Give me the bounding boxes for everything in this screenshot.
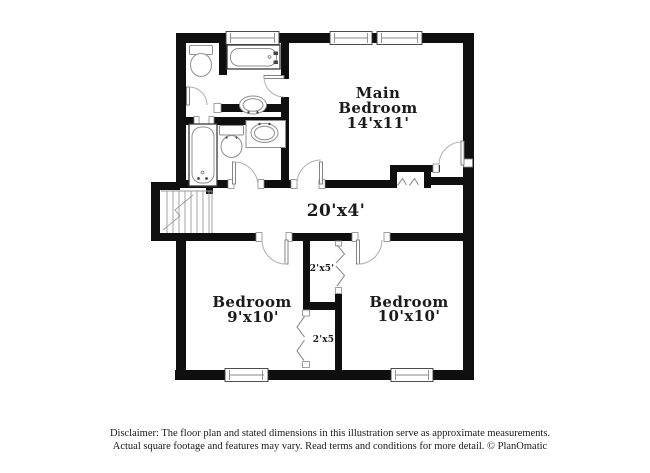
- floor-plan-page: Main Bedroom 14'x11' 20'x4' Bedroom 9'x1…: [0, 0, 650, 473]
- door: [187, 87, 208, 105]
- hallway-dimensions: 20'x4': [307, 201, 365, 221]
- wall-top: [177, 33, 474, 43]
- bifold-door: [398, 179, 419, 186]
- bifold-door: [336, 245, 345, 286]
- disclaimer-line2: Actual square footage and features may v…: [113, 441, 548, 452]
- disclaimer-line1: Disclaimer: The floor plan and stated di…: [110, 428, 550, 439]
- sink-icon: [240, 96, 267, 114]
- bathtub-icon: [189, 124, 217, 186]
- bedroom9-dimensions: 9'x10': [227, 308, 279, 326]
- door: [357, 240, 383, 264]
- window: [377, 32, 422, 45]
- window: [225, 369, 268, 382]
- main-bedroom-dimensions: 14'x11': [347, 114, 410, 132]
- window: [391, 369, 433, 382]
- door: [264, 76, 284, 98]
- toilet-icon: [190, 46, 213, 77]
- bifold-door: [297, 317, 305, 361]
- window: [226, 32, 279, 45]
- disclaimer-text: Disclaimer: The floor plan and stated di…: [110, 428, 550, 452]
- window: [330, 32, 372, 45]
- wall-stair-bump-left: [151, 182, 160, 241]
- toilet-icon: [220, 126, 244, 158]
- floor-plan-svg: Main Bedroom 14'x11' 20'x4' Bedroom 9'x1…: [0, 0, 650, 473]
- wall-left-upper: [176, 33, 186, 184]
- door: [439, 141, 464, 165]
- closet-upper-dimensions: 2'x5': [310, 264, 334, 274]
- door: [262, 240, 288, 264]
- wall-stair-bump-top: [151, 182, 180, 190]
- sink-icon: [246, 121, 286, 148]
- wall-left-lower: [176, 239, 186, 374]
- wall-right: [463, 33, 474, 380]
- bathtub-icon: [227, 45, 280, 69]
- door: [233, 162, 259, 186]
- closet-lower-dimensions: 2'x5': [313, 335, 337, 345]
- staircase: [161, 191, 212, 233]
- bedroom10-dimensions: 10'x10': [378, 307, 441, 325]
